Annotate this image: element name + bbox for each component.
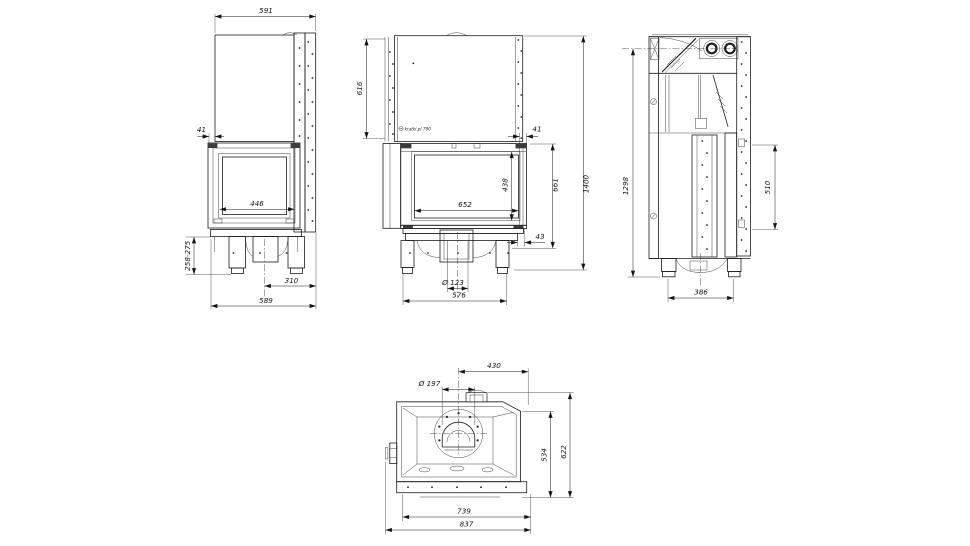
dim-label-622: 622 bbox=[559, 445, 568, 459]
base-legs bbox=[649, 253, 751, 286]
front-view: kratki.pl 790 bbox=[355, 33, 591, 305]
dim-label-258-275: 258-275 bbox=[183, 240, 192, 270]
dim-label-438: 438 bbox=[501, 178, 510, 192]
left-side-view: 591 41 446 258-275 310 589 bbox=[183, 6, 316, 310]
dim-label-446: 446 bbox=[250, 199, 264, 208]
flue-damper-mechanism bbox=[622, 38, 738, 73]
dim-446: 446 bbox=[220, 199, 295, 210]
dim-label-d197: Ø 197 bbox=[418, 379, 441, 388]
dim-label-510: 510 bbox=[763, 180, 772, 194]
dim-616: 616 bbox=[355, 39, 385, 139]
dim-d123: Ø 123 bbox=[441, 262, 468, 292]
base-legs bbox=[401, 229, 524, 298]
dim-41-left: 41 bbox=[197, 125, 224, 143]
base-legs bbox=[211, 230, 305, 300]
outlet-ring bbox=[707, 44, 717, 54]
dim-438: 438 bbox=[501, 152, 512, 221]
dim-1298: 1298 bbox=[621, 49, 660, 277]
flue-collar-arc bbox=[446, 33, 467, 36]
dim-510: 510 bbox=[752, 145, 778, 230]
damper-lever-tab bbox=[466, 390, 487, 402]
firebox-cavity bbox=[403, 408, 515, 476]
dim-label-41-left: 41 bbox=[197, 125, 206, 134]
dim-label-41-right: 41 bbox=[532, 125, 541, 134]
baffle-section bbox=[649, 73, 737, 133]
drawing-canvas: 591 41 446 258-275 310 589 bbox=[0, 0, 970, 546]
right-side-view: 1298 510 386 bbox=[621, 35, 778, 302]
dim-41-right: 41 bbox=[508, 125, 542, 144]
side-door bbox=[208, 143, 300, 228]
top-view: Ø 197 430 534 622 739 837 bbox=[386, 361, 574, 534]
dim-label-589: 589 bbox=[259, 296, 273, 305]
dim-label-430: 430 bbox=[487, 361, 501, 370]
dim-label-1400: 1400 bbox=[582, 174, 591, 193]
technical-drawing: 591 41 446 258-275 310 589 bbox=[0, 0, 970, 546]
brand-logo-text: kratki.pl 790 bbox=[405, 126, 432, 131]
dim-label-837: 837 bbox=[460, 520, 474, 529]
dim-label-d123: Ø 123 bbox=[441, 278, 464, 287]
screw-dots bbox=[389, 39, 522, 139]
brand-logo: kratki.pl 790 bbox=[399, 126, 431, 131]
dim-837: 837 bbox=[386, 462, 531, 534]
dim-591: 591 bbox=[215, 6, 316, 33]
dim-label-576: 576 bbox=[452, 291, 466, 300]
dim-589: 589 bbox=[211, 239, 316, 310]
dim-label-661: 661 bbox=[551, 178, 560, 192]
screw-dots bbox=[299, 41, 314, 222]
dim-label-616: 616 bbox=[355, 81, 364, 95]
dim-label-310: 310 bbox=[285, 276, 299, 285]
dim-label-591: 591 bbox=[259, 6, 273, 15]
dim-label-1298: 1298 bbox=[621, 176, 630, 195]
dim-label-386: 386 bbox=[694, 288, 708, 297]
screw-dots bbox=[407, 486, 507, 488]
dim-258-275: 258-275 bbox=[183, 237, 231, 275]
dim-label-43: 43 bbox=[535, 232, 545, 241]
dim-652: 652 bbox=[415, 200, 519, 211]
dim-label-652: 652 bbox=[458, 200, 472, 209]
dim-43: 43 bbox=[507, 229, 545, 247]
outlet-ring bbox=[725, 44, 735, 54]
dim-1400: 1400 bbox=[514, 36, 591, 270]
dim-386: 386 bbox=[668, 279, 734, 302]
dim-label-739: 739 bbox=[457, 507, 471, 516]
dim-label-534: 534 bbox=[540, 448, 549, 462]
door-latch-bracket bbox=[386, 443, 397, 464]
